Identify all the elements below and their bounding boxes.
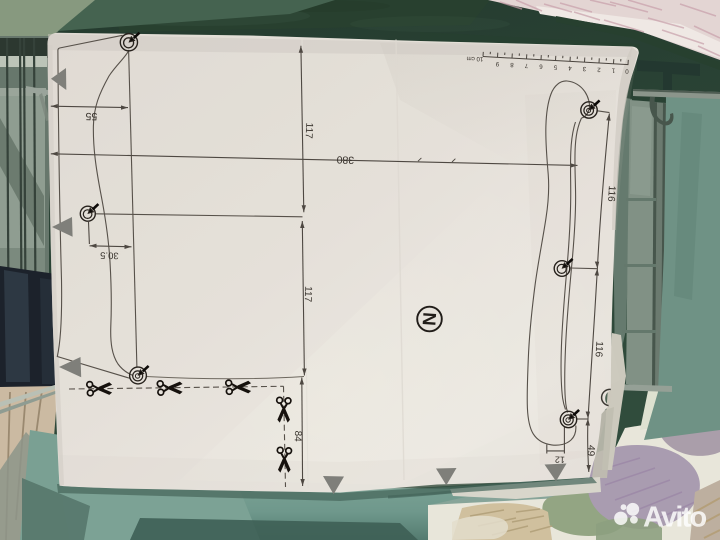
svg-text:117: 117 [302,286,314,303]
svg-text:117: 117 [303,122,315,139]
svg-text:116: 116 [605,185,617,202]
svg-text:84: 84 [292,430,303,442]
svg-text:55: 55 [85,110,97,122]
svg-text:30.5: 30.5 [100,249,119,260]
svg-text:10 cm: 10 cm [466,55,483,62]
svg-text:49: 49 [585,445,597,457]
svg-text:116: 116 [592,341,604,358]
svg-text:N: N [419,312,441,327]
svg-text:12: 12 [555,454,565,464]
svg-text:380: 380 [336,153,354,165]
svg-text:Avito: Avito [643,502,707,534]
